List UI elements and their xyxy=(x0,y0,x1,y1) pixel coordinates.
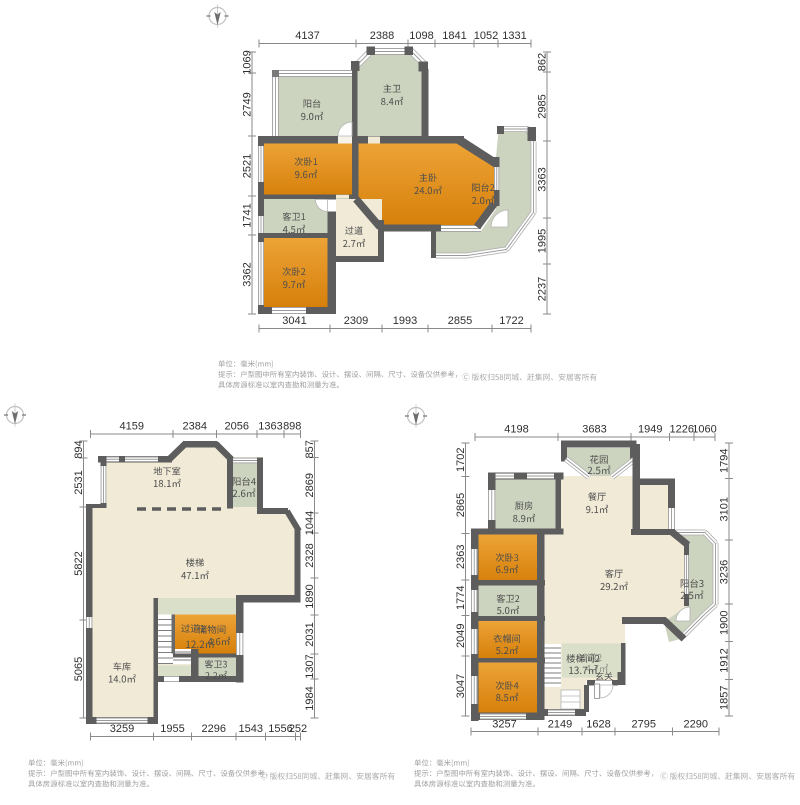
svg-text:2531: 2531 xyxy=(73,470,85,494)
svg-text:2149: 2149 xyxy=(548,719,572,731)
svg-text:2296: 2296 xyxy=(202,723,226,735)
svg-text:1741: 1741 xyxy=(242,203,254,227)
svg-text:1774: 1774 xyxy=(455,586,467,610)
svg-text:5822: 5822 xyxy=(73,551,85,575)
svg-text:3683: 3683 xyxy=(582,424,606,436)
svg-text:2388: 2388 xyxy=(370,30,394,42)
svg-text:2363: 2363 xyxy=(455,545,467,569)
svg-text:2290: 2290 xyxy=(684,719,708,731)
svg-text:4137: 4137 xyxy=(295,30,319,42)
svg-text:1841: 1841 xyxy=(442,30,466,42)
svg-text:2309: 2309 xyxy=(344,315,368,327)
svg-text:1995: 1995 xyxy=(537,229,549,253)
svg-text:2985: 2985 xyxy=(537,94,549,118)
svg-text:1993: 1993 xyxy=(393,315,417,327)
svg-text:894: 894 xyxy=(73,440,85,458)
svg-text:3362: 3362 xyxy=(242,262,254,286)
svg-text:1331: 1331 xyxy=(502,30,526,42)
svg-text:3101: 3101 xyxy=(719,497,731,521)
svg-text:1069: 1069 xyxy=(242,50,254,74)
svg-text:252: 252 xyxy=(289,723,307,735)
svg-text:1628: 1628 xyxy=(586,719,610,731)
svg-text:2521: 2521 xyxy=(242,154,254,178)
svg-text:1890: 1890 xyxy=(304,584,316,608)
svg-text:1044: 1044 xyxy=(304,511,316,535)
svg-text:2384: 2384 xyxy=(183,421,207,433)
svg-text:898: 898 xyxy=(283,421,301,433)
svg-text:1955: 1955 xyxy=(160,723,184,735)
svg-text:3257: 3257 xyxy=(492,719,516,731)
svg-text:1900: 1900 xyxy=(719,611,731,635)
svg-text:1794: 1794 xyxy=(719,449,731,473)
svg-text:2237: 2237 xyxy=(537,277,549,301)
svg-text:2749: 2749 xyxy=(242,92,254,116)
svg-text:2031: 2031 xyxy=(304,622,316,646)
svg-text:2328: 2328 xyxy=(304,543,316,567)
svg-text:862: 862 xyxy=(537,53,549,71)
svg-text:1052: 1052 xyxy=(474,30,498,42)
svg-text:4159: 4159 xyxy=(120,421,144,433)
svg-text:1722: 1722 xyxy=(499,315,523,327)
svg-text:3236: 3236 xyxy=(719,560,731,584)
svg-text:1857: 1857 xyxy=(719,686,731,710)
svg-text:4198: 4198 xyxy=(504,424,528,436)
svg-text:1226: 1226 xyxy=(670,424,694,436)
svg-text:5065: 5065 xyxy=(73,657,85,681)
svg-text:2869: 2869 xyxy=(304,473,316,497)
svg-text:1984: 1984 xyxy=(304,686,316,710)
svg-text:1949: 1949 xyxy=(638,424,662,436)
svg-text:1060: 1060 xyxy=(692,424,716,436)
svg-text:1702: 1702 xyxy=(455,448,467,472)
svg-text:3363: 3363 xyxy=(537,167,549,191)
svg-text:2056: 2056 xyxy=(225,421,249,433)
svg-text:3259: 3259 xyxy=(110,723,134,735)
svg-text:1912: 1912 xyxy=(719,648,731,672)
svg-text:1098: 1098 xyxy=(409,30,433,42)
svg-text:857: 857 xyxy=(304,440,316,458)
svg-text:1307: 1307 xyxy=(304,654,316,678)
svg-text:2049: 2049 xyxy=(455,624,467,648)
svg-text:1543: 1543 xyxy=(239,723,263,735)
svg-text:2855: 2855 xyxy=(448,315,472,327)
svg-text:3041: 3041 xyxy=(282,315,306,327)
svg-text:2795: 2795 xyxy=(632,719,656,731)
svg-text:3047: 3047 xyxy=(455,674,467,698)
svg-text:2865: 2865 xyxy=(455,493,467,517)
svg-text:1363: 1363 xyxy=(258,421,282,433)
